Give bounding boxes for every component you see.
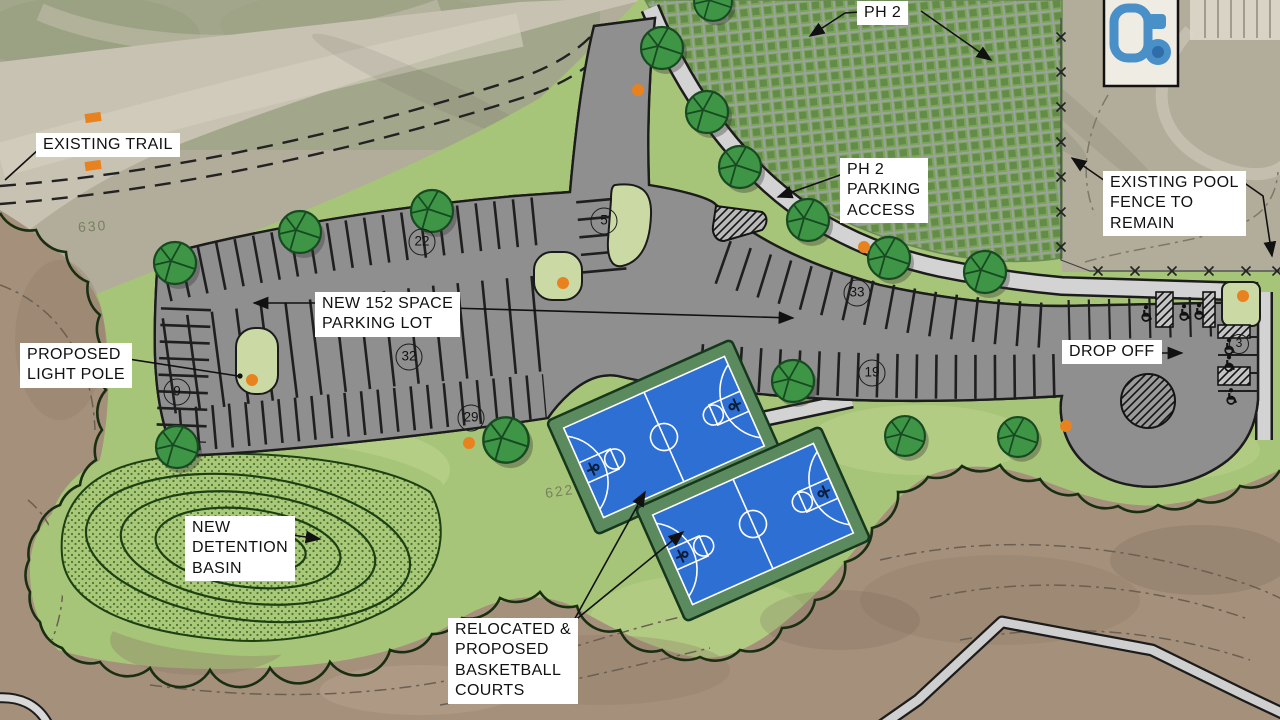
stall-count-badge: 5: [591, 208, 618, 235]
stall-count-badge: 29: [458, 405, 485, 432]
label-proposed-light-pole: PROPOSED LIGHT POLE: [20, 343, 132, 388]
label-basketball-courts: RELOCATED & PROPOSED BASKETBALL COURTS: [448, 618, 578, 704]
stall-count-badge: 3: [1229, 334, 1249, 354]
label-new-parking-lot: NEW 152 SPACE PARKING LOT: [315, 292, 460, 337]
label-ph2-parking-access: PH 2 PARKING ACCESS: [840, 158, 928, 223]
light-pole-icon: [1060, 420, 1072, 432]
light-pole-icon: [463, 437, 475, 449]
label-ph2: PH 2: [857, 1, 908, 25]
stall-count-badge: 33: [844, 280, 871, 307]
label-detention-basin: NEW DETENTION BASIN: [185, 516, 295, 581]
label-drop-off: DROP OFF: [1062, 340, 1162, 364]
stall-count-badge: 19: [859, 360, 886, 387]
label-existing-trail: EXISTING TRAIL: [36, 133, 180, 157]
light-pole-icon: [1237, 290, 1249, 302]
light-pole-icon: [632, 84, 644, 96]
site-plan: EXISTING TRAIL PH 2 PH 2 PARKING ACCESS …: [0, 0, 1280, 720]
light-pole-icon: [246, 374, 258, 386]
stall-count-badge: 22: [409, 229, 436, 256]
light-pole-icon: [557, 277, 569, 289]
stall-count-badge: 9: [164, 379, 191, 406]
stall-count-badge: 32: [396, 344, 423, 371]
light-pole-icon: [858, 241, 870, 253]
label-pool-fence: EXISTING POOL FENCE TO REMAIN: [1103, 171, 1246, 236]
contour-label: 630: [77, 217, 107, 235]
